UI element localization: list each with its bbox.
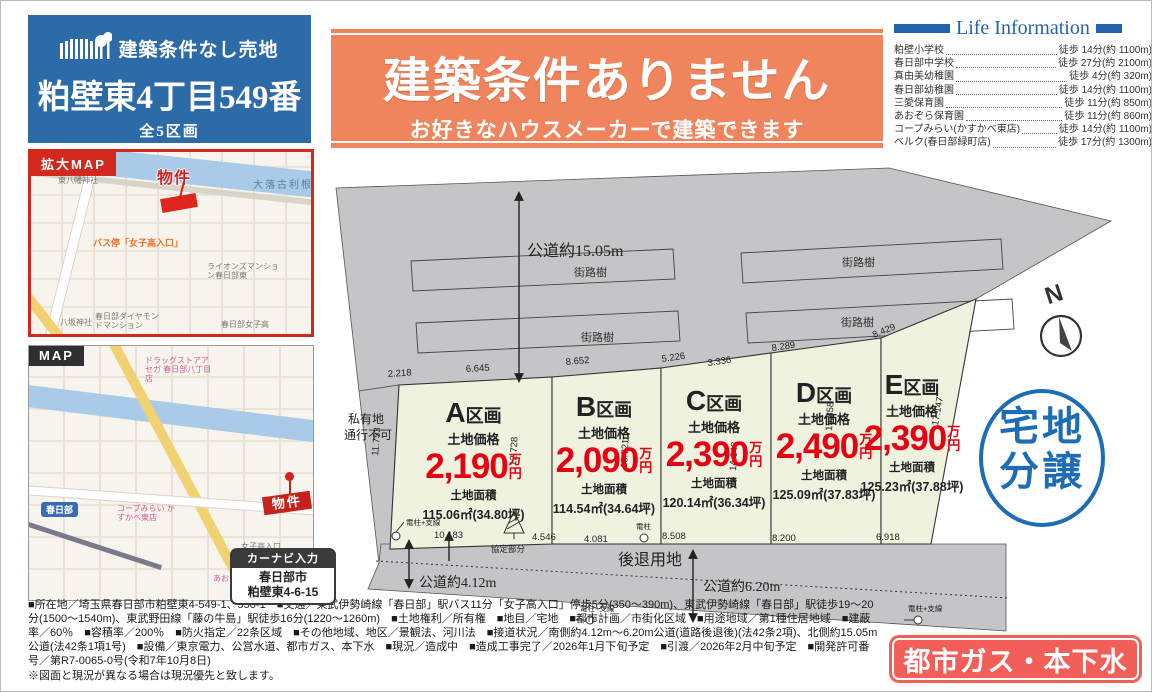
- dim-label: 8.200: [772, 533, 796, 544]
- dotted-leader: [1022, 133, 1057, 134]
- title-bar-right: [1096, 24, 1122, 33]
- life-info-row: ベルク(春日部緑町店)徒歩 17分(約 1300m): [894, 136, 1152, 149]
- lot-e-price: 2,390: [864, 421, 947, 456]
- setback-label: 後退用地: [618, 551, 682, 569]
- dim-label: 2.218: [387, 367, 411, 380]
- life-info-row: 三愛保育園徒歩 11分(約 850m): [894, 97, 1152, 110]
- map1-tab: 拡大MAP: [31, 152, 116, 176]
- brand-units: 全5区画: [28, 120, 311, 141]
- river-band: [28, 384, 314, 446]
- agreement-label: 協定部分: [491, 544, 526, 554]
- south-road-width-label-left: 公道約4.12m: [419, 575, 496, 591]
- fence-tree-icon: [60, 31, 112, 66]
- poi-label: 春日部ダイヤモンドマンション: [95, 312, 165, 330]
- poi-label: 八坂神社: [60, 318, 92, 327]
- street-tree-label: 街路樹: [842, 255, 875, 269]
- land-sale-stamp: 宅地 分譲: [979, 389, 1105, 527]
- svg-text:電柱+支線: 電柱+支線: [908, 603, 943, 613]
- dim-label: 4.081: [584, 534, 608, 545]
- dotted-leader: [966, 120, 1062, 121]
- compass-n-label: N: [1042, 281, 1067, 310]
- lot-a-info: A区画 土地価格 2,190万円 土地面積 115.06㎡(34.80坪): [396, 399, 551, 523]
- lot-a-area: 115.06㎡(34.80坪): [396, 504, 551, 523]
- car-navi-title: カーナビ入力: [230, 548, 336, 568]
- navi-address: 粕壁東4-6-15: [232, 585, 334, 600]
- map2-tab: MAP: [29, 346, 84, 366]
- station-badge: 春日部: [41, 502, 78, 517]
- brand-tagline: 建築条件なし売地: [118, 35, 278, 62]
- life-info-row: コープみらい(かすかべ東店)徒歩 14分(約 1100m): [894, 123, 1152, 136]
- life-info-row: 粕壁小学校徒歩 14分(約 1100m): [894, 44, 1152, 57]
- poi-label: コープみらい かすかべ東店: [117, 504, 175, 522]
- disclaimer-note: ※図面と現況が異なる場合は現況優先と致します。: [28, 670, 880, 684]
- dotted-leader: [956, 81, 1067, 82]
- dotted-leader: [956, 67, 1056, 68]
- dim-label: 8.652: [565, 355, 590, 368]
- flyer-page: 建築条件なし売地 粕壁東4丁目549番 全5区画 建築条件ありません お好きなハ…: [0, 0, 1152, 692]
- poi-label: ドラッグストアアセガ 春日部八丁目店: [145, 356, 215, 384]
- lot-a-price: 2,190: [425, 449, 508, 484]
- dotted-leader: [946, 107, 1062, 108]
- title-bar-left: [894, 24, 950, 33]
- rail-line: [28, 519, 162, 570]
- street-tree-label: 街路樹: [841, 315, 874, 329]
- navi-city: 春日部市: [232, 570, 334, 585]
- banner-border: [331, 33, 883, 143]
- river-label: 大落古利根川: [253, 180, 314, 192]
- dotted-leader: [993, 147, 1056, 148]
- life-info-row: 春日部中学校徒歩 27分(約 2100m): [894, 57, 1152, 70]
- north-road-width-label: 公道約15.05m: [527, 242, 624, 260]
- dim-label: 6.645: [466, 363, 490, 375]
- bus-stop-label: バス停「女子高入口」: [93, 238, 183, 248]
- compass: N: [1026, 281, 1096, 367]
- poi-label: 春日部女子高: [221, 320, 269, 329]
- private-land-label2: 通行不可: [344, 428, 392, 442]
- dim-label: 6.918: [876, 532, 900, 543]
- lot-e-area: 125.23㎡(37.88坪): [841, 476, 983, 495]
- dim-label: 4.546: [532, 532, 556, 543]
- dotted-leader: [946, 54, 1057, 55]
- property-details: ■所在地／埼玉県春日部市粕壁東4-549-1、550-1 ■交通／東武伊勢崎線「…: [28, 599, 880, 684]
- utilities-label: 都市ガス・本下水: [892, 638, 1139, 680]
- poi-label: 東八幡神社: [58, 176, 98, 185]
- dim-label: 8.508: [662, 531, 686, 542]
- utilities-badge: 都市ガス・本下水: [889, 635, 1142, 683]
- car-navi-box: カーナビ入力 春日部市 粕壁東4-6-15: [230, 548, 336, 605]
- private-land-label1: 私有地: [348, 412, 384, 426]
- south-road-width-label-right: 公道約6.20m: [703, 579, 780, 595]
- brand-box: 建築条件なし売地 粕壁東4丁目549番 全5区画: [28, 15, 311, 143]
- life-info-row: あおぞら保育園徒歩 11分(約 860m): [894, 110, 1152, 123]
- lot-c-price: 2,390: [666, 437, 749, 472]
- property-details-text: ■所在地／埼玉県春日部市粕壁東4-549-1、550-1 ■交通／東武伊勢崎線「…: [28, 599, 880, 669]
- life-information-title: Life Information: [956, 17, 1090, 40]
- lot-e-info: E区画 土地価格 2,390万円 土地面積 125.23㎡(37.88坪): [841, 371, 983, 495]
- lot-b-price: 2,090: [556, 443, 639, 478]
- dotted-leader: [956, 94, 1057, 95]
- street-tree-label: 街路樹: [581, 330, 614, 344]
- life-info-row: 真由美幼稚園徒歩 4分(約 320m): [894, 70, 1152, 83]
- life-info-row: 春日部幼稚園徒歩 14分(約 1100m): [894, 84, 1152, 97]
- poi-label: ライオンズマンション春日部東: [207, 262, 279, 280]
- svg-text:電柱: 電柱: [636, 521, 651, 531]
- life-information-panel: Life Information 粕壁小学校徒歩 14分(約 1100m) 春日…: [894, 17, 1152, 150]
- enlarged-map: 大落古利根川 物件 バス停「女子高入口」 東八幡神社 八坂神社 春日部ダイヤモン…: [28, 149, 314, 337]
- property-pin: [285, 472, 294, 481]
- brand-title: 粕壁東4丁目549番: [28, 70, 311, 118]
- street-tree-label: 街路樹: [574, 265, 607, 279]
- property-label: 物件: [157, 164, 191, 188]
- headline-banner: 建築条件ありません お好きなハウスメーカーで建築できます: [331, 29, 883, 148]
